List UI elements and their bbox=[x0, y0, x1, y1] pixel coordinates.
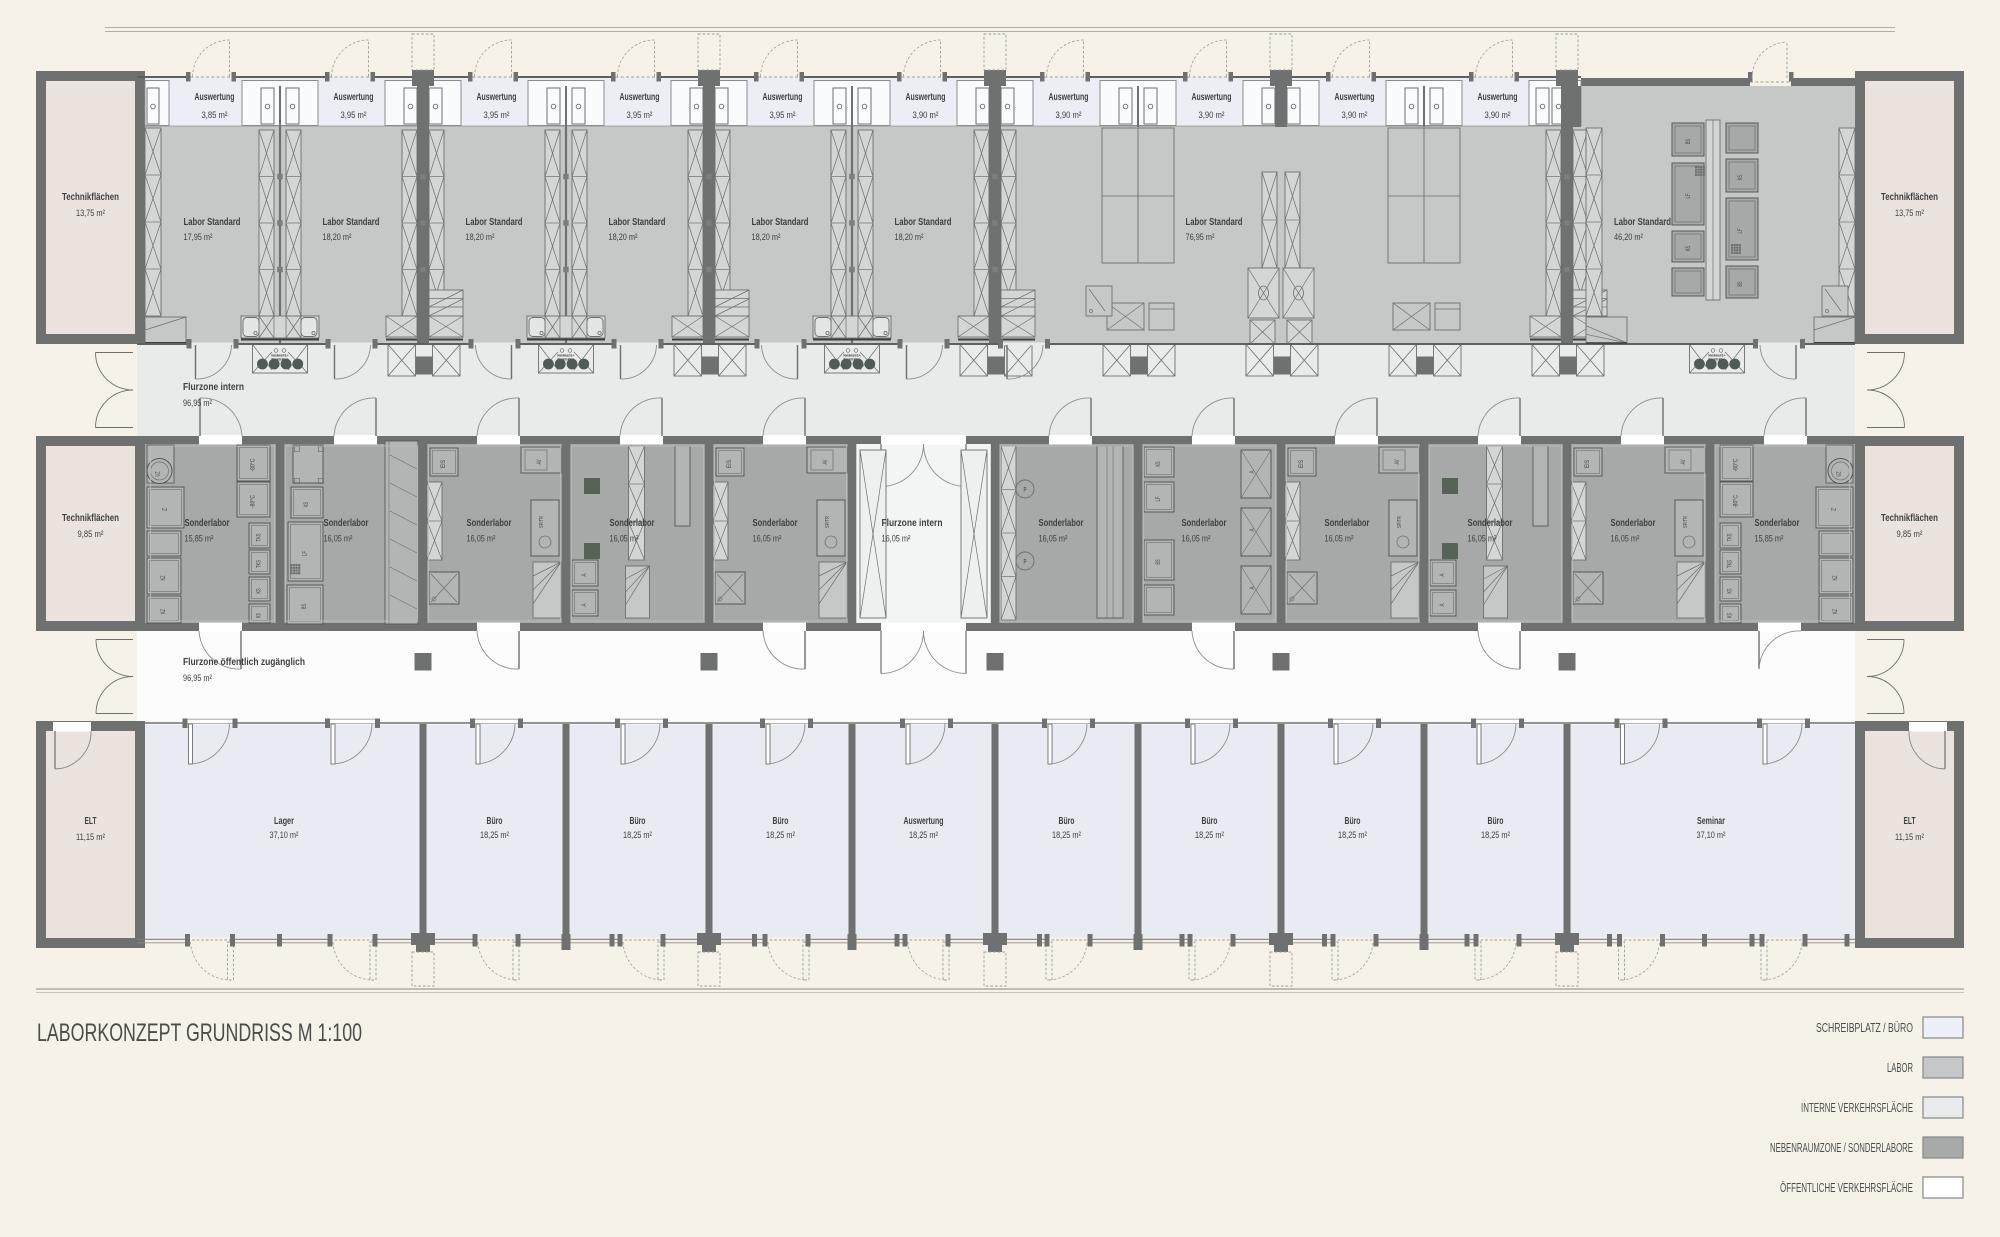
svg-text:16,05 m²: 16,05 m² bbox=[1468, 534, 1497, 544]
svg-text:18,25 m²: 18,25 m² bbox=[1481, 830, 1510, 840]
svg-text:EIS: EIS bbox=[1299, 460, 1305, 468]
svg-text:A: A bbox=[1250, 471, 1256, 474]
svg-text:Büro: Büro bbox=[487, 816, 503, 827]
svg-text:Sonderlabor: Sonderlabor bbox=[753, 518, 798, 529]
svg-text:76,95 m²: 76,95 m² bbox=[1186, 232, 1215, 242]
svg-text:NEBENRAUMZONE / SONDERLABORE: NEBENRAUMZONE / SONDERLABORE bbox=[1770, 1141, 1913, 1155]
svg-text:Seminar: Seminar bbox=[1697, 816, 1725, 827]
svg-text:KS: KS bbox=[257, 589, 263, 594]
svg-text:15,85 m²: 15,85 m² bbox=[1755, 534, 1784, 544]
svg-text:P: P bbox=[1024, 559, 1027, 566]
svg-text:18,20 m²: 18,20 m² bbox=[895, 232, 924, 242]
svg-text:EIS: EIS bbox=[1585, 460, 1591, 468]
svg-text:16,05 m²: 16,05 m² bbox=[610, 534, 639, 544]
svg-text:Labor Standard: Labor Standard bbox=[895, 217, 952, 228]
svg-text:Z: Z bbox=[163, 508, 169, 511]
svg-text:KZ: KZ bbox=[1833, 609, 1839, 614]
svg-text:Sonderlabor: Sonderlabor bbox=[1325, 518, 1370, 529]
svg-text:15,85 m²: 15,85 m² bbox=[185, 534, 214, 544]
svg-text:BS: BS bbox=[1156, 560, 1162, 565]
svg-text:Büro: Büro bbox=[1202, 816, 1218, 827]
svg-text:18,25 m²: 18,25 m² bbox=[480, 830, 509, 840]
svg-text:17,95 m²: 17,95 m² bbox=[184, 232, 213, 242]
svg-text:A: A bbox=[582, 604, 588, 607]
svg-text:Auswertung: Auswertung bbox=[763, 92, 803, 103]
svg-text:SP/TR: SP/TR bbox=[1397, 516, 1403, 528]
svg-text:16,05 m²: 16,05 m² bbox=[324, 534, 353, 544]
svg-text:11,15 m²: 11,15 m² bbox=[1895, 832, 1924, 842]
svg-text:16,05 m²: 16,05 m² bbox=[882, 534, 911, 544]
svg-text:Labor Standard: Labor Standard bbox=[466, 217, 523, 228]
svg-text:Labor Standard: Labor Standard bbox=[609, 217, 666, 228]
svg-text:KS: KS bbox=[304, 502, 310, 507]
svg-text:Büro: Büro bbox=[1488, 816, 1504, 827]
svg-text:Flurzone intern: Flurzone intern bbox=[882, 518, 943, 529]
svg-text:UZ: UZ bbox=[156, 471, 162, 476]
svg-text:3,90 m²: 3,90 m² bbox=[1485, 110, 1511, 120]
svg-text:3,90 m²: 3,90 m² bbox=[1342, 110, 1368, 120]
svg-text:Auswertung: Auswertung bbox=[477, 92, 517, 103]
svg-text:ELT: ELT bbox=[85, 816, 97, 827]
svg-text:TKS: TKS bbox=[257, 534, 263, 542]
svg-text:LF: LF bbox=[1737, 228, 1744, 233]
svg-text:9,85 m²: 9,85 m² bbox=[78, 529, 104, 539]
svg-text:SP/TR: SP/TR bbox=[1683, 516, 1689, 528]
svg-text:TKS: TKS bbox=[257, 560, 263, 568]
svg-text:Sonderlabor: Sonderlabor bbox=[1039, 518, 1084, 529]
svg-text:A: A bbox=[1250, 587, 1256, 590]
svg-text:SP/TR: SP/TR bbox=[539, 516, 545, 528]
svg-text:Büro: Büro bbox=[773, 816, 789, 827]
svg-text:KZ: KZ bbox=[161, 575, 167, 580]
svg-text:Büro: Büro bbox=[1345, 816, 1361, 827]
svg-text:SCHREIBPLATZ / BÜRO: SCHREIBPLATZ / BÜRO bbox=[1816, 1021, 1913, 1035]
svg-text:3,90 m²: 3,90 m² bbox=[913, 110, 939, 120]
svg-text:Auswertung: Auswertung bbox=[904, 816, 944, 827]
svg-text:Auswertung: Auswertung bbox=[1478, 92, 1518, 103]
svg-text:96,95 m²: 96,95 m² bbox=[183, 673, 212, 683]
svg-text:UZ: UZ bbox=[1837, 471, 1843, 476]
svg-text:AV: AV bbox=[823, 460, 829, 465]
svg-text:16,05 m²: 16,05 m² bbox=[1039, 534, 1068, 544]
svg-text:3,95 m²: 3,95 m² bbox=[341, 110, 367, 120]
svg-text:Labor Standard: Labor Standard bbox=[1614, 217, 1671, 228]
svg-text:AV: AV bbox=[537, 460, 543, 465]
svg-text:Sonderlabor: Sonderlabor bbox=[324, 518, 369, 529]
svg-text:Auswertung: Auswertung bbox=[195, 92, 235, 103]
svg-text:-80°C: -80°C bbox=[251, 458, 257, 472]
svg-text:Technikflächen: Technikflächen bbox=[1881, 192, 1938, 203]
svg-text:Auswertung: Auswertung bbox=[906, 92, 946, 103]
svg-text:Technikflächen: Technikflächen bbox=[62, 192, 119, 203]
svg-text:LABORKONZEPT GRUNDRISS M 1:10: LABORKONZEPT GRUNDRISS M 1:100 bbox=[37, 1019, 362, 1047]
svg-text:Lager: Lager bbox=[274, 816, 294, 827]
svg-text:13,75 m²: 13,75 m² bbox=[76, 208, 105, 218]
svg-text:18,25 m²: 18,25 m² bbox=[1052, 830, 1081, 840]
svg-text:AV: AV bbox=[1395, 460, 1401, 465]
svg-text:3,95 m²: 3,95 m² bbox=[770, 110, 796, 120]
svg-text:11,15 m²: 11,15 m² bbox=[76, 832, 105, 842]
svg-text:3,95 m²: 3,95 m² bbox=[627, 110, 653, 120]
svg-text:Sonderlabor: Sonderlabor bbox=[1755, 518, 1800, 529]
svg-text:P: P bbox=[1024, 487, 1027, 494]
svg-text:18,20 m²: 18,20 m² bbox=[323, 232, 352, 242]
svg-text:18,20 m²: 18,20 m² bbox=[466, 232, 495, 242]
svg-text:A: A bbox=[1250, 529, 1256, 532]
svg-text:18,25 m²: 18,25 m² bbox=[623, 830, 652, 840]
svg-text:Labor Standard: Labor Standard bbox=[184, 217, 241, 228]
svg-text:BS: BS bbox=[302, 604, 308, 609]
svg-text:Auswertung: Auswertung bbox=[334, 92, 374, 103]
svg-text:INTERNE VERKEHRSFLÄCHE: INTERNE VERKEHRSFLÄCHE bbox=[1801, 1101, 1913, 1115]
svg-text:BS: BS bbox=[1685, 139, 1692, 144]
svg-text:Sonderlabor: Sonderlabor bbox=[1468, 518, 1513, 529]
svg-text:KS: KS bbox=[1156, 462, 1162, 467]
svg-text:Technikflächen: Technikflächen bbox=[1881, 513, 1938, 524]
svg-text:Sonderlabor: Sonderlabor bbox=[185, 518, 230, 529]
svg-text:Technikflächen: Technikflächen bbox=[62, 513, 119, 524]
svg-text:3,85 m²: 3,85 m² bbox=[202, 110, 228, 120]
svg-text:16,05 m²: 16,05 m² bbox=[467, 534, 496, 544]
svg-text:18,20 m²: 18,20 m² bbox=[609, 232, 638, 242]
svg-text:18,25 m²: 18,25 m² bbox=[909, 830, 938, 840]
svg-text:BS: BS bbox=[1737, 281, 1744, 286]
svg-text:9,85 m²: 9,85 m² bbox=[1897, 529, 1923, 539]
svg-text:Auswertung: Auswertung bbox=[620, 92, 660, 103]
svg-text:ÖFFENTLICHE VERKEHRSFLÄCHE: ÖFFENTLICHE VERKEHRSFLÄCHE bbox=[1780, 1181, 1913, 1195]
svg-text:LF: LF bbox=[1156, 496, 1162, 501]
svg-text:KS: KS bbox=[1728, 589, 1734, 594]
svg-text:KZ: KZ bbox=[1833, 575, 1839, 580]
svg-text:Sonderlabor: Sonderlabor bbox=[1182, 518, 1227, 529]
svg-text:Sonderlabor: Sonderlabor bbox=[467, 518, 512, 529]
svg-text:Labor Standard: Labor Standard bbox=[752, 217, 809, 228]
svg-text:Flurzone öffentlich zugänglich: Flurzone öffentlich zugänglich bbox=[183, 657, 305, 668]
svg-text:A: A bbox=[582, 574, 588, 577]
svg-text:96,95 m²: 96,95 m² bbox=[183, 398, 212, 408]
svg-text:EIS: EIS bbox=[727, 460, 733, 468]
svg-text:37,10 m²: 37,10 m² bbox=[1697, 830, 1726, 840]
svg-text:3,90 m²: 3,90 m² bbox=[1056, 110, 1082, 120]
svg-text:18,25 m²: 18,25 m² bbox=[766, 830, 795, 840]
svg-text:LF: LF bbox=[1685, 193, 1692, 198]
svg-text:16,05 m²: 16,05 m² bbox=[753, 534, 782, 544]
svg-text:Büro: Büro bbox=[630, 816, 646, 827]
svg-text:13,75 m²: 13,75 m² bbox=[1895, 208, 1924, 218]
svg-text:18,25 m²: 18,25 m² bbox=[1338, 830, 1367, 840]
svg-text:KS: KS bbox=[1685, 246, 1692, 251]
svg-text:18,25 m²: 18,25 m² bbox=[1195, 830, 1224, 840]
svg-text:KS: KS bbox=[1737, 175, 1744, 180]
svg-text:KS: KS bbox=[1728, 613, 1734, 618]
svg-text:16,05 m²: 16,05 m² bbox=[1325, 534, 1354, 544]
svg-text:Z: Z bbox=[1832, 508, 1838, 511]
svg-text:46,20 m²: 46,20 m² bbox=[1614, 232, 1643, 242]
svg-text:Auswertung: Auswertung bbox=[1192, 92, 1232, 103]
svg-text:KZ: KZ bbox=[161, 609, 167, 614]
svg-text:Flurzone intern: Flurzone intern bbox=[183, 382, 244, 393]
svg-text:16,05 m²: 16,05 m² bbox=[1182, 534, 1211, 544]
svg-text:Sonderlabor: Sonderlabor bbox=[610, 518, 655, 529]
svg-text:A: A bbox=[1440, 604, 1446, 607]
svg-text:LABOR: LABOR bbox=[1887, 1061, 1913, 1075]
svg-text:TKS: TKS bbox=[1728, 560, 1734, 568]
svg-text:37,10 m²: 37,10 m² bbox=[270, 830, 299, 840]
svg-text:3,90 m²: 3,90 m² bbox=[1199, 110, 1225, 120]
svg-text:-80°C: -80°C bbox=[251, 494, 257, 508]
svg-text:3,95 m²: 3,95 m² bbox=[484, 110, 510, 120]
svg-text:LF: LF bbox=[303, 551, 309, 556]
svg-text:-80°C: -80°C bbox=[1734, 494, 1740, 508]
svg-text:KS: KS bbox=[257, 613, 263, 618]
svg-text:Auswertung: Auswertung bbox=[1335, 92, 1375, 103]
svg-text:-80°C: -80°C bbox=[1734, 458, 1740, 472]
svg-text:Labor Standard: Labor Standard bbox=[1186, 217, 1243, 228]
svg-text:A: A bbox=[1440, 574, 1446, 577]
svg-text:Labor Standard: Labor Standard bbox=[323, 217, 380, 228]
svg-text:TKS: TKS bbox=[1728, 534, 1734, 542]
svg-text:ELT: ELT bbox=[1904, 816, 1916, 827]
svg-text:18,20 m²: 18,20 m² bbox=[752, 232, 781, 242]
svg-text:AV: AV bbox=[1681, 460, 1687, 465]
svg-text:EIS: EIS bbox=[441, 460, 447, 468]
svg-text:16,05 m²: 16,05 m² bbox=[1611, 534, 1640, 544]
svg-text:SP/TR: SP/TR bbox=[825, 516, 831, 528]
svg-text:Sonderlabor: Sonderlabor bbox=[1611, 518, 1656, 529]
svg-text:Büro: Büro bbox=[1059, 816, 1075, 827]
svg-text:Auswertung: Auswertung bbox=[1049, 92, 1089, 103]
